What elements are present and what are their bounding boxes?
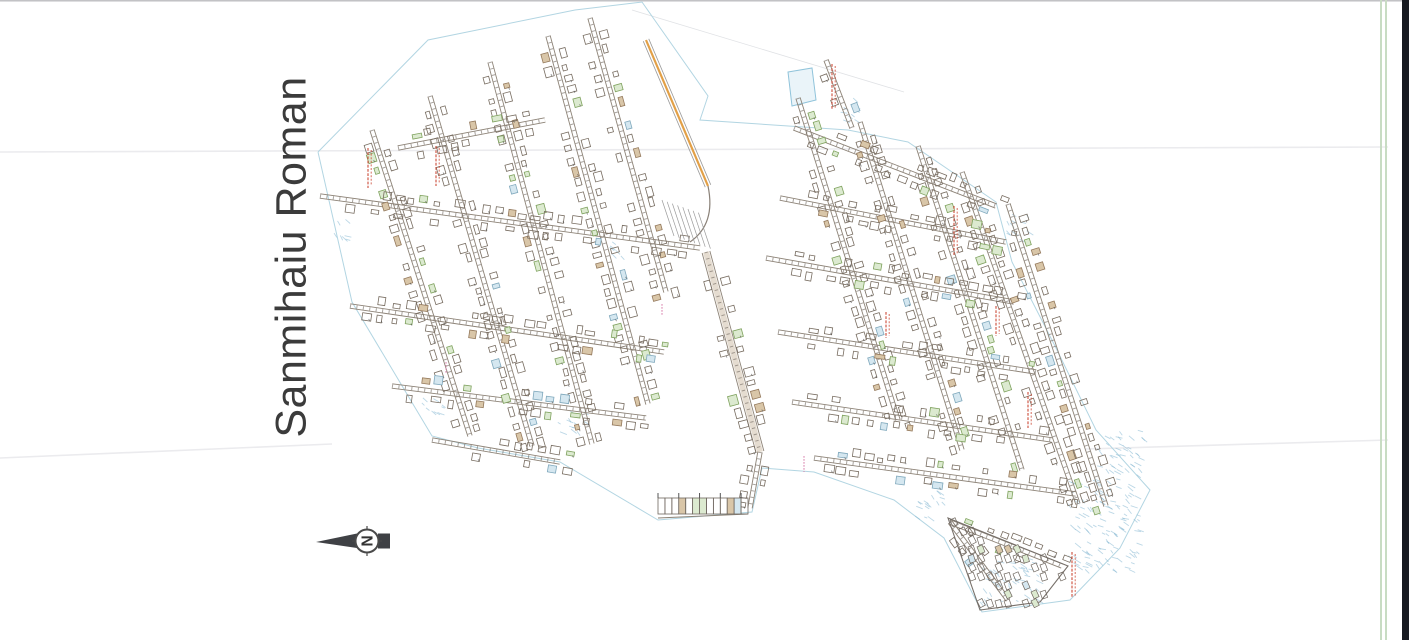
building — [873, 384, 880, 390]
building — [558, 344, 568, 350]
building — [1098, 455, 1108, 466]
building — [728, 305, 736, 312]
building — [595, 88, 605, 98]
building — [562, 467, 572, 475]
scanned-plan-page: N Sanmihaiu Roman — [0, 0, 1409, 640]
parcel — [720, 498, 727, 514]
building — [452, 354, 461, 364]
building — [646, 355, 655, 363]
building — [887, 455, 895, 461]
building — [847, 216, 854, 222]
building — [585, 330, 595, 336]
building — [977, 415, 982, 421]
building — [949, 446, 957, 455]
building — [951, 367, 961, 374]
buildings-layer — [345, 30, 1116, 567]
building — [932, 482, 943, 490]
building — [737, 346, 744, 353]
building — [996, 436, 1004, 443]
building — [934, 276, 940, 283]
building — [516, 432, 523, 441]
building — [418, 304, 428, 311]
building — [940, 413, 946, 419]
building — [972, 434, 983, 441]
building — [480, 248, 489, 258]
building — [851, 307, 858, 317]
building — [555, 233, 562, 241]
building — [893, 421, 900, 428]
building — [750, 389, 760, 399]
building — [747, 380, 756, 386]
building — [992, 245, 1003, 255]
building — [583, 237, 592, 244]
building — [945, 203, 954, 212]
building — [982, 321, 991, 330]
building — [655, 224, 662, 231]
building — [621, 225, 627, 232]
building — [582, 346, 593, 354]
building — [834, 186, 844, 196]
building — [1060, 404, 1069, 413]
building — [522, 111, 529, 117]
building — [809, 328, 819, 334]
building — [526, 402, 534, 411]
building — [625, 121, 632, 130]
building — [756, 414, 765, 425]
building — [948, 483, 958, 489]
building — [488, 345, 496, 352]
building — [865, 288, 874, 297]
parcel — [1040, 563, 1048, 572]
building — [952, 465, 960, 470]
building — [946, 275, 956, 285]
parcel — [665, 498, 672, 514]
parcel — [734, 498, 741, 514]
building — [953, 392, 962, 403]
parcel — [1004, 590, 1012, 599]
building — [479, 238, 487, 248]
building — [795, 251, 804, 257]
parcel — [1040, 572, 1048, 581]
building — [988, 528, 995, 534]
building — [978, 488, 987, 496]
building — [631, 246, 639, 253]
parcel — [672, 498, 679, 514]
building — [412, 133, 422, 139]
building — [419, 195, 428, 203]
building — [447, 346, 454, 354]
building — [873, 313, 881, 321]
building — [392, 318, 397, 324]
building — [463, 385, 471, 391]
building — [906, 310, 916, 320]
building — [896, 476, 906, 485]
building — [431, 396, 441, 403]
building — [470, 121, 477, 130]
building — [856, 332, 866, 342]
building — [389, 224, 399, 233]
building — [616, 153, 623, 162]
building — [537, 321, 546, 328]
building — [534, 261, 541, 272]
building — [1035, 543, 1043, 549]
building — [988, 415, 998, 425]
building — [934, 331, 941, 338]
building — [1023, 538, 1032, 546]
building — [640, 423, 648, 428]
building — [928, 430, 935, 439]
building — [480, 332, 488, 339]
building — [824, 327, 832, 335]
building — [808, 191, 818, 199]
building — [409, 291, 418, 299]
building — [962, 327, 971, 337]
building — [529, 418, 537, 425]
parcel — [968, 535, 976, 544]
building — [483, 76, 490, 84]
building — [880, 423, 887, 431]
building — [867, 420, 873, 427]
building — [533, 191, 540, 198]
building — [864, 453, 874, 461]
building — [876, 326, 884, 336]
parcel — [1031, 590, 1039, 599]
building — [875, 354, 885, 360]
building — [555, 357, 564, 365]
building — [807, 344, 815, 349]
building — [678, 251, 686, 258]
building — [964, 519, 973, 526]
building — [989, 235, 997, 245]
building — [538, 287, 545, 294]
north-arrow-pointer — [316, 534, 357, 549]
parcel — [706, 498, 713, 514]
building — [717, 335, 724, 341]
parcel — [1022, 581, 1030, 590]
building — [899, 220, 905, 228]
building — [577, 192, 586, 202]
building — [852, 449, 861, 458]
building — [364, 143, 374, 153]
building — [497, 308, 502, 314]
building — [1035, 358, 1041, 366]
building — [604, 288, 611, 296]
building — [563, 368, 569, 376]
building — [1057, 381, 1063, 387]
building — [846, 237, 854, 247]
building — [596, 262, 604, 268]
building — [434, 376, 443, 385]
building — [917, 165, 923, 172]
building — [1038, 368, 1047, 377]
building — [1024, 238, 1031, 246]
building — [649, 280, 657, 288]
building — [550, 257, 559, 265]
building — [652, 294, 661, 301]
building — [476, 401, 484, 408]
building — [889, 357, 896, 366]
building — [504, 315, 514, 324]
building — [1046, 390, 1056, 400]
building — [954, 304, 964, 315]
building — [560, 394, 570, 403]
building — [472, 453, 481, 462]
building — [734, 408, 743, 419]
building — [827, 276, 836, 282]
building — [978, 311, 987, 320]
building — [1071, 462, 1082, 474]
parcel — [1022, 554, 1029, 563]
parcel — [713, 498, 720, 514]
building — [1063, 414, 1073, 425]
building — [838, 452, 848, 458]
building — [508, 407, 515, 417]
building — [971, 219, 982, 229]
building — [492, 115, 503, 122]
building — [870, 221, 880, 230]
building — [546, 396, 554, 402]
building — [760, 480, 765, 486]
building — [440, 106, 447, 115]
parcel — [977, 554, 985, 563]
main-road-orange — [643, 39, 711, 249]
building — [503, 92, 513, 103]
building — [898, 406, 906, 417]
building — [824, 464, 835, 473]
building — [441, 325, 449, 330]
parcel — [1004, 572, 1011, 581]
building — [1019, 214, 1029, 222]
building — [831, 242, 841, 252]
building — [842, 280, 849, 287]
building — [525, 128, 533, 136]
building — [406, 300, 416, 309]
building — [405, 319, 412, 325]
building — [976, 255, 986, 265]
building — [533, 391, 543, 400]
building — [599, 30, 609, 40]
building — [393, 303, 400, 308]
building — [595, 238, 601, 245]
parcel — [977, 572, 985, 581]
building — [926, 216, 935, 222]
building — [930, 292, 938, 301]
building — [1030, 342, 1040, 354]
building — [944, 430, 951, 435]
building — [1022, 387, 1032, 397]
building — [1054, 414, 1064, 424]
building — [662, 342, 668, 347]
building — [559, 47, 567, 58]
building — [490, 272, 498, 280]
building — [968, 282, 979, 291]
building — [453, 219, 462, 227]
building — [1044, 443, 1055, 455]
building — [1015, 424, 1021, 430]
building — [911, 324, 918, 330]
building — [593, 252, 602, 259]
building — [1005, 397, 1011, 404]
building — [1041, 286, 1048, 295]
building — [844, 295, 854, 303]
building — [992, 489, 998, 494]
building — [975, 298, 983, 308]
building — [877, 215, 886, 223]
building — [890, 379, 897, 385]
building — [744, 434, 752, 442]
building — [562, 65, 568, 72]
building — [832, 151, 839, 157]
building — [720, 276, 730, 286]
building — [518, 214, 527, 220]
building — [573, 97, 582, 107]
building — [873, 263, 882, 271]
building — [572, 351, 580, 361]
building — [1039, 426, 1049, 435]
building — [514, 130, 524, 141]
building — [1067, 450, 1077, 461]
parcel — [700, 498, 707, 514]
building — [416, 312, 425, 323]
building — [845, 227, 853, 236]
building — [875, 205, 881, 212]
building — [1088, 433, 1095, 441]
building — [573, 346, 581, 354]
building — [531, 408, 541, 417]
building — [888, 196, 894, 205]
building — [924, 477, 932, 484]
building — [1064, 352, 1070, 358]
building — [530, 216, 540, 221]
building — [835, 201, 843, 208]
building — [835, 466, 846, 475]
building — [378, 297, 386, 306]
building — [929, 408, 939, 418]
building — [583, 390, 592, 398]
building — [451, 419, 460, 428]
building — [406, 395, 412, 403]
building — [998, 261, 1005, 268]
building — [454, 161, 461, 171]
building — [902, 342, 912, 349]
building — [607, 298, 617, 309]
parcel — [995, 563, 1003, 572]
building — [434, 295, 443, 305]
building — [576, 437, 585, 447]
building — [1057, 496, 1064, 503]
building — [942, 294, 951, 300]
building — [1001, 380, 1011, 391]
building — [961, 202, 970, 213]
building — [575, 178, 582, 187]
building — [627, 306, 637, 318]
parcel — [658, 498, 665, 514]
building — [1074, 479, 1081, 489]
building — [889, 254, 895, 262]
parcel — [959, 527, 967, 536]
building — [981, 265, 990, 273]
parcel-row — [658, 493, 748, 518]
building — [926, 458, 935, 467]
building — [854, 280, 864, 289]
building — [638, 174, 646, 181]
building — [945, 434, 952, 441]
building — [374, 167, 380, 174]
building — [577, 325, 583, 334]
building — [581, 207, 589, 214]
building — [640, 254, 650, 265]
building — [502, 335, 510, 344]
building — [458, 243, 468, 253]
building — [648, 197, 655, 207]
parcel — [686, 498, 693, 514]
building — [500, 380, 506, 389]
building — [607, 127, 613, 133]
building — [593, 171, 603, 182]
building — [544, 412, 551, 420]
building — [442, 177, 449, 186]
parcel — [693, 498, 700, 514]
building — [859, 161, 870, 172]
building — [1049, 369, 1056, 376]
building — [1063, 555, 1072, 562]
building — [567, 85, 577, 94]
building — [949, 173, 957, 182]
building — [934, 178, 943, 186]
parcel — [679, 498, 686, 514]
building — [448, 400, 454, 409]
building — [1047, 550, 1056, 558]
building — [926, 373, 935, 380]
plot-frame-line-right — [1385, 0, 1387, 640]
building — [859, 221, 869, 227]
building — [371, 209, 379, 214]
building — [636, 229, 644, 236]
building — [897, 175, 907, 184]
building — [462, 139, 470, 146]
building — [468, 278, 477, 287]
building — [613, 71, 619, 77]
building — [849, 470, 859, 477]
building — [1016, 268, 1024, 279]
building — [791, 268, 801, 276]
plot-frame-line-left — [1380, 0, 1382, 640]
building — [828, 414, 839, 422]
building — [561, 132, 570, 140]
building — [546, 247, 555, 255]
building — [466, 253, 472, 262]
building — [636, 355, 642, 363]
building — [728, 394, 739, 406]
building — [544, 66, 555, 78]
north-arrow: N — [316, 526, 390, 556]
building — [991, 354, 1000, 360]
building — [966, 348, 973, 356]
parcel — [1031, 563, 1039, 572]
building — [1031, 248, 1040, 256]
building — [1029, 475, 1036, 483]
building — [1001, 532, 1009, 540]
building — [434, 201, 440, 206]
building — [570, 336, 578, 347]
building — [633, 218, 642, 226]
building — [1059, 389, 1066, 398]
building — [832, 396, 840, 402]
building — [473, 225, 479, 235]
building — [566, 451, 574, 456]
building — [754, 402, 765, 412]
building — [505, 163, 514, 171]
